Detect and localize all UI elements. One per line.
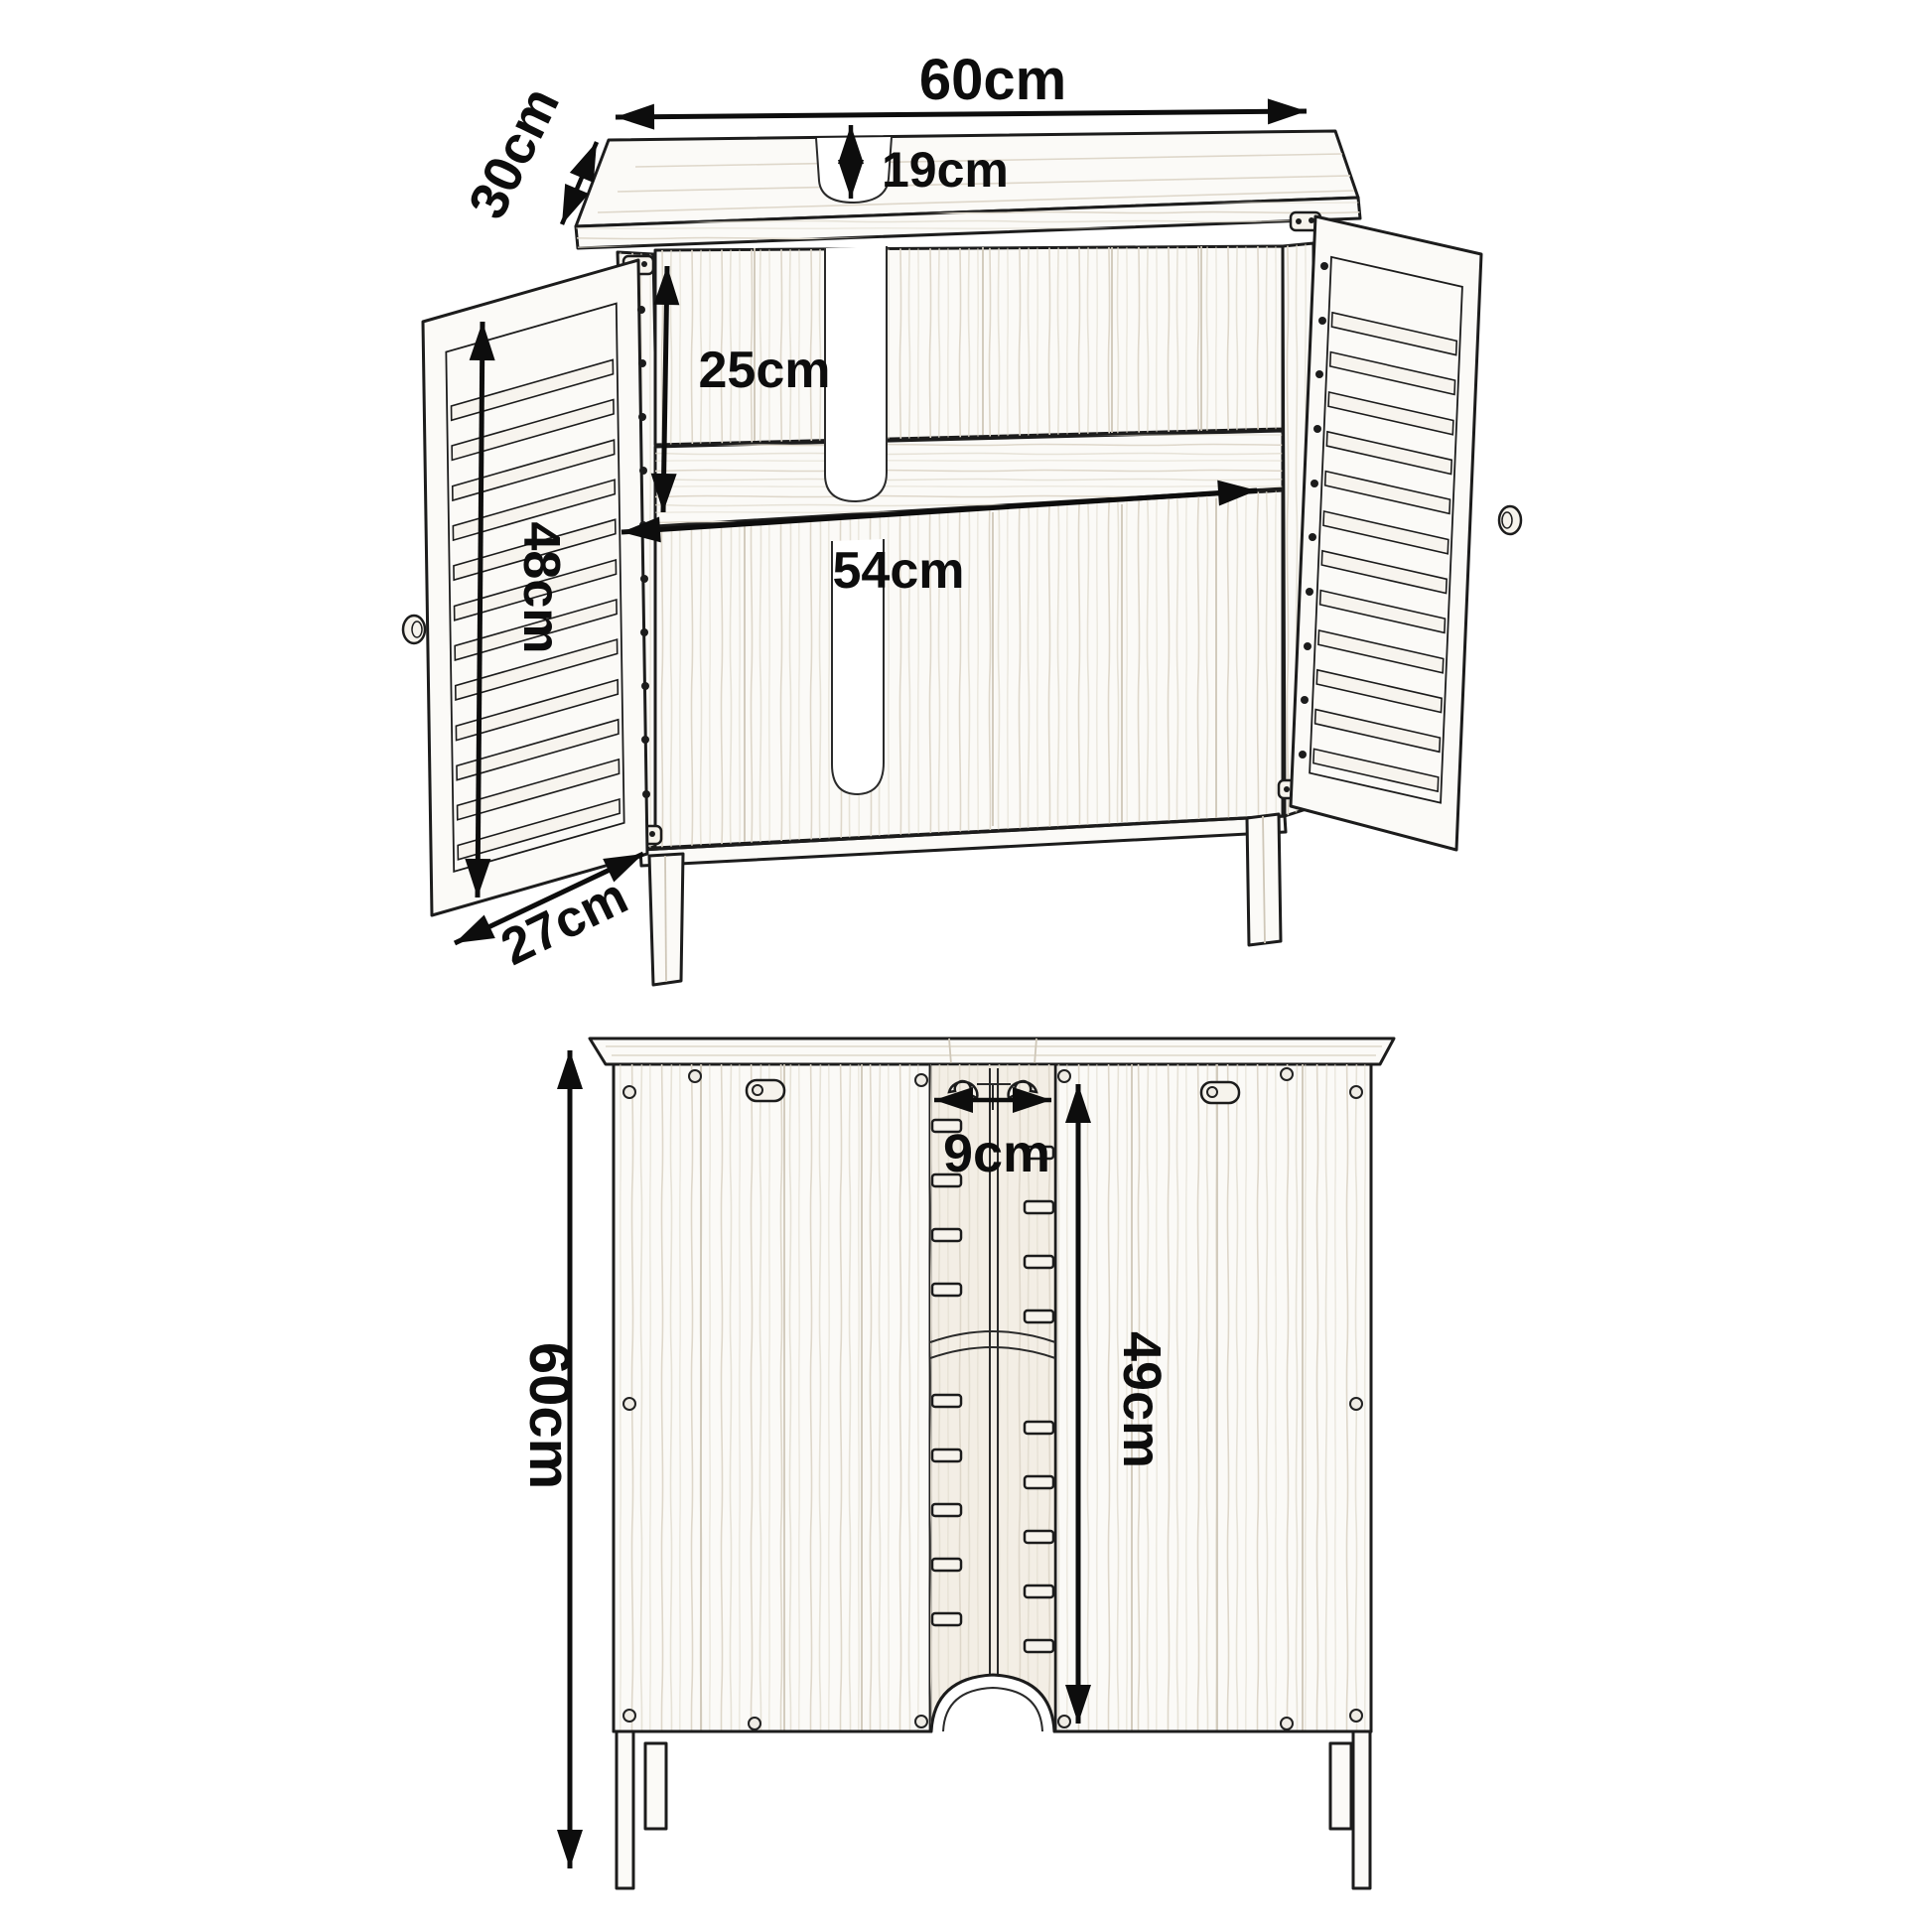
dim-cutout-depth-label: 19cm <box>882 142 1009 198</box>
dim-upper-height-label: 25cm <box>699 342 831 399</box>
back-panel-lower <box>655 490 1283 848</box>
back-left-leg <box>617 1731 633 1888</box>
front-right-leg <box>1247 814 1281 945</box>
dim-channel-width-label: 9cm <box>943 1124 1050 1183</box>
left-door-knob <box>403 616 425 643</box>
front-perspective-view: 60cm 30cm 19cm 25cm 54cm 48cm 27cm <box>403 48 1521 985</box>
front-left-leg-back <box>645 1743 666 1829</box>
pipe-slot-upper <box>825 246 887 501</box>
right-door-knob <box>1499 506 1521 534</box>
dim-door-height-label: 48cm <box>512 522 570 654</box>
dim-slot-height-label: 49cm <box>1112 1331 1172 1468</box>
right-louvered-door <box>1291 216 1521 850</box>
back-panel-right <box>1055 1064 1371 1731</box>
dim-overall-height-label: 60cm <box>517 1342 582 1489</box>
front-right-leg-back <box>1330 1743 1351 1829</box>
back-view-base <box>614 1731 1371 1888</box>
cabinet-dimension-diagram: 60cm 30cm 19cm 25cm 54cm 48cm 27cm <box>0 0 1932 1932</box>
back-right-leg <box>1353 1731 1370 1888</box>
sink-pipe-cutout <box>816 137 892 203</box>
back-view: 60cm 9cm 49cm <box>517 1038 1394 1888</box>
dim-top-width-label: 60cm <box>919 48 1066 112</box>
front-left-leg <box>649 854 683 985</box>
diagram-canvas: 60cm 30cm 19cm 25cm 54cm 48cm 27cm <box>0 0 1932 1932</box>
dim-top-depth-label: 30cm <box>458 78 571 227</box>
dim-interior-width-label: 54cm <box>833 542 965 600</box>
back-panel-left <box>614 1064 930 1731</box>
back-top-board <box>590 1038 1394 1064</box>
